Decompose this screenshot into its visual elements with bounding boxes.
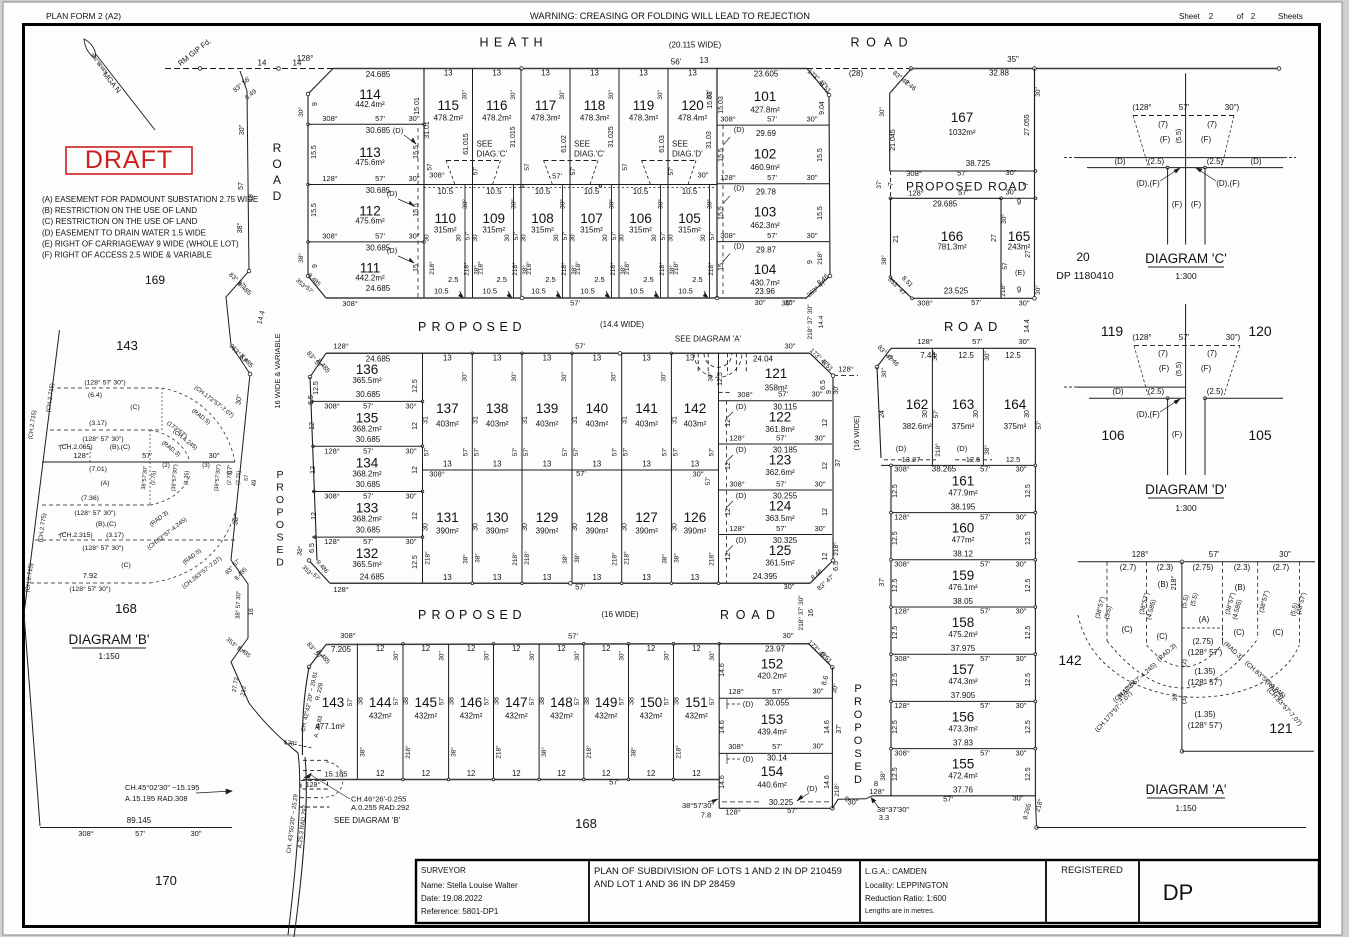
svg-text:13: 13 <box>688 69 697 78</box>
svg-text:20: 20 <box>1076 250 1090 264</box>
svg-text:SEE DIAGRAM 'A': SEE DIAGRAM 'A' <box>675 335 742 344</box>
svg-text:R: R <box>276 482 284 494</box>
svg-text:57': 57' <box>660 232 667 240</box>
svg-text:308°: 308° <box>894 654 910 663</box>
svg-text:163: 163 <box>952 397 975 412</box>
svg-text:122: 122 <box>769 409 792 424</box>
svg-text:151: 151 <box>685 695 708 710</box>
svg-text:(D): (D) <box>1250 157 1261 166</box>
svg-text:27: 27 <box>1025 250 1032 258</box>
svg-text:30": 30" <box>784 342 795 351</box>
svg-text:2: 2 <box>1251 12 1256 21</box>
svg-text:(F): (F) <box>1159 364 1170 373</box>
svg-text:119: 119 <box>633 98 655 113</box>
svg-text:38°: 38° <box>672 553 680 563</box>
svg-text:57': 57' <box>576 469 586 478</box>
svg-text:30.14: 30.14 <box>767 754 788 763</box>
svg-text:30: 30 <box>671 523 678 531</box>
svg-text:(D): (D) <box>957 444 968 453</box>
svg-text:781.3m²: 781.3m² <box>937 243 967 252</box>
svg-text:1:150: 1:150 <box>1175 803 1197 813</box>
svg-text:(2.5): (2.5) <box>1148 387 1165 396</box>
svg-text:57': 57' <box>363 401 373 410</box>
svg-text:30°: 30° <box>657 199 665 209</box>
svg-text:12.5: 12.5 <box>1025 767 1032 781</box>
svg-text:A: A <box>884 36 893 50</box>
svg-text:S: S <box>487 320 495 334</box>
svg-text:13: 13 <box>541 69 550 78</box>
svg-text:128°: 128° <box>838 365 854 374</box>
svg-text:38: 38 <box>539 697 546 705</box>
svg-text:9: 9 <box>826 390 833 394</box>
svg-text:30": 30" <box>405 446 416 455</box>
svg-text:12: 12 <box>822 553 829 561</box>
svg-text:365.5m²: 365.5m² <box>352 376 382 385</box>
svg-text:10.5: 10.5 <box>437 187 453 196</box>
svg-text:3.3: 3.3 <box>879 813 889 822</box>
svg-text:15.03: 15.03 <box>718 96 725 114</box>
svg-text:218°: 218° <box>560 262 568 276</box>
svg-text:128°: 128° <box>297 54 314 63</box>
svg-text:427.8m²: 427.8m² <box>750 105 780 114</box>
svg-text:57': 57' <box>980 512 990 521</box>
svg-text:218°: 218° <box>404 745 412 759</box>
svg-text:38°57'30": 38°57'30" <box>682 801 714 810</box>
svg-text:420.2m²: 420.2m² <box>757 672 787 681</box>
svg-text:DIAGRAM 'B': DIAGRAM 'B' <box>69 632 150 647</box>
svg-text:30": 30" <box>783 582 794 591</box>
svg-text:38°: 38° <box>540 747 548 757</box>
svg-text:160: 160 <box>952 521 975 536</box>
svg-text:143: 143 <box>116 338 138 353</box>
svg-text:35": 35" <box>1007 55 1019 64</box>
svg-text:12: 12 <box>725 462 732 470</box>
svg-text:12: 12 <box>467 769 476 778</box>
svg-text:57': 57' <box>1209 550 1220 559</box>
svg-text:PLAN FORM 2 (A2): PLAN FORM 2 (A2) <box>46 11 121 21</box>
svg-text:(28): (28) <box>849 69 864 78</box>
svg-text:315m²: 315m² <box>531 226 554 235</box>
svg-text:30": 30" <box>510 90 517 100</box>
svg-text:30': 30' <box>1172 693 1179 701</box>
svg-text:218° 37' 30": 218° 37' 30" <box>797 595 805 631</box>
svg-text:12.5: 12.5 <box>1025 578 1032 592</box>
svg-text:P: P <box>854 683 861 695</box>
svg-text:49: 49 <box>248 194 255 202</box>
svg-text:30: 30 <box>668 234 675 242</box>
svg-text:105: 105 <box>1248 427 1272 443</box>
svg-text:57': 57' <box>570 167 577 175</box>
svg-text:38°: 38° <box>561 554 569 564</box>
svg-text:38: 38 <box>584 697 591 705</box>
svg-text:(1.35): (1.35) <box>1195 710 1216 719</box>
svg-text:PLAN OF SUBDIVISION OF LOTS 1: PLAN OF SUBDIVISION OF LOTS 1 AND 2 IN D… <box>594 866 842 877</box>
svg-text:2.5: 2.5 <box>448 275 458 284</box>
svg-text:38°: 38° <box>983 445 991 455</box>
svg-text:R: R <box>273 141 282 155</box>
svg-text:57: 57 <box>1002 262 1009 270</box>
svg-text:57': 57' <box>611 232 618 240</box>
svg-text:12: 12 <box>725 508 732 516</box>
svg-text:30°: 30° <box>608 199 616 209</box>
svg-text:403m²: 403m² <box>586 420 609 429</box>
svg-text:478.2m²: 478.2m² <box>482 114 512 123</box>
svg-text:2.5: 2.5 <box>692 275 702 284</box>
svg-text:9: 9 <box>312 264 319 268</box>
svg-text:12.5: 12.5 <box>892 578 899 592</box>
svg-text:30": 30" <box>1015 748 1026 757</box>
svg-text:38: 38 <box>494 697 501 705</box>
svg-text:126: 126 <box>684 510 707 525</box>
svg-text:57': 57' <box>623 448 630 456</box>
svg-text:118: 118 <box>584 98 606 113</box>
svg-text:38: 38 <box>674 697 681 705</box>
svg-text:9: 9 <box>1017 286 1022 295</box>
svg-text:30.685: 30.685 <box>356 435 381 444</box>
svg-text:30": 30" <box>529 651 536 661</box>
svg-text:2.5: 2.5 <box>545 275 555 284</box>
svg-text:474.3m²: 474.3m² <box>948 677 978 686</box>
svg-text:368.2m²: 368.2m² <box>352 424 382 433</box>
svg-text:147: 147 <box>505 695 528 710</box>
svg-text:57: 57 <box>622 163 629 171</box>
svg-text:30: 30 <box>1024 410 1031 418</box>
svg-text:38°: 38° <box>450 747 458 757</box>
svg-text:(6.4): (6.4) <box>88 392 102 399</box>
svg-text:478.4m²: 478.4m² <box>678 114 708 123</box>
svg-text:477.9m²: 477.9m² <box>948 488 978 497</box>
svg-text:57': 57' <box>473 167 480 175</box>
svg-text:(2.5): (2.5) <box>1207 157 1224 166</box>
svg-text:128°: 128° <box>729 434 745 443</box>
svg-text:440.6m²: 440.6m² <box>757 781 787 790</box>
svg-text:30.055: 30.055 <box>765 699 790 708</box>
svg-text:38°: 38° <box>297 253 305 263</box>
svg-text:478.3m²: 478.3m² <box>531 114 561 123</box>
svg-text:142: 142 <box>1058 652 1082 668</box>
svg-text:(5.5): (5.5) <box>1176 362 1183 376</box>
svg-text:218°: 218° <box>585 745 593 759</box>
svg-text:13: 13 <box>639 69 648 78</box>
svg-text:128°: 128° <box>908 189 924 198</box>
svg-text:21: 21 <box>893 235 900 243</box>
svg-text:57': 57' <box>552 172 562 181</box>
svg-text:30": 30" <box>692 470 703 479</box>
svg-text:308°: 308° <box>728 742 744 751</box>
svg-text:12: 12 <box>512 644 521 653</box>
svg-text:30: 30 <box>472 234 479 242</box>
svg-text:130: 130 <box>486 510 509 525</box>
svg-text:128°: 128° <box>333 342 349 351</box>
svg-text:13: 13 <box>493 354 502 363</box>
svg-text:140: 140 <box>586 401 609 416</box>
svg-text:308°: 308° <box>342 299 358 308</box>
svg-text:30: 30 <box>456 234 463 242</box>
svg-text:146: 146 <box>460 695 483 710</box>
svg-text:12: 12 <box>822 508 829 516</box>
svg-text:(128° 57' 30"): (128° 57' 30") <box>84 379 125 387</box>
svg-text:(2.3): (2.3) <box>1157 563 1174 572</box>
svg-text:(2.5): (2.5) <box>1207 387 1224 396</box>
svg-text:(D): (D) <box>387 246 398 255</box>
svg-text:(7): (7) <box>1158 120 1168 129</box>
svg-text:30": 30" <box>709 651 716 661</box>
svg-text:30": 30" <box>511 372 518 382</box>
svg-text:Name: Stella Louise Walter: Name: Stella Louise Walter <box>421 881 518 890</box>
svg-text:24: 24 <box>879 410 886 418</box>
svg-text:13: 13 <box>686 354 695 363</box>
svg-text:30": 30" <box>619 651 626 661</box>
svg-text:O: O <box>854 709 863 721</box>
svg-text:38°: 38° <box>461 554 469 564</box>
svg-text:31.01: 31.01 <box>424 121 431 139</box>
svg-text:308°: 308° <box>729 480 745 489</box>
svg-text:123: 123 <box>769 453 792 468</box>
svg-text:13: 13 <box>700 56 709 65</box>
svg-text:(D): (D) <box>1112 387 1123 396</box>
svg-text:10.5: 10.5 <box>584 187 600 196</box>
svg-text:57': 57' <box>709 232 716 240</box>
svg-text:308°: 308° <box>737 390 753 399</box>
svg-text:154: 154 <box>761 764 784 779</box>
svg-text:167: 167 <box>951 110 974 125</box>
svg-text:13: 13 <box>593 573 602 582</box>
svg-text:12: 12 <box>376 769 385 778</box>
svg-text:101: 101 <box>754 89 777 104</box>
svg-text:DP: DP <box>1163 880 1194 905</box>
svg-text:150: 150 <box>640 695 663 710</box>
svg-text:403m²: 403m² <box>486 420 509 429</box>
svg-text:128°: 128° <box>894 701 910 710</box>
svg-text:13: 13 <box>590 69 599 78</box>
svg-text:(D): (D) <box>736 491 747 500</box>
svg-text:E: E <box>500 608 508 622</box>
svg-text:12.5: 12.5 <box>892 720 899 734</box>
svg-text:(128° 57'): (128° 57') <box>1188 721 1223 730</box>
svg-text:REGISTERED: REGISTERED <box>1061 865 1123 876</box>
svg-text:30": 30" <box>1035 87 1042 97</box>
svg-text:38.12: 38.12 <box>953 550 974 559</box>
svg-text:37.76: 37.76 <box>953 786 974 795</box>
svg-text:13: 13 <box>543 460 552 469</box>
svg-text:D: D <box>766 608 775 622</box>
svg-text:12.5: 12.5 <box>1025 484 1032 498</box>
svg-text:29.87: 29.87 <box>756 246 777 255</box>
svg-text:363.5m²: 363.5m² <box>765 514 795 523</box>
svg-text:315m²: 315m² <box>434 226 457 235</box>
svg-text:107: 107 <box>580 211 603 226</box>
svg-text:61.015: 61.015 <box>463 133 470 155</box>
svg-text:57': 57' <box>135 829 145 838</box>
svg-text:30": 30" <box>1015 465 1026 474</box>
svg-text:30": 30" <box>611 372 618 382</box>
svg-text:38.195: 38.195 <box>951 502 976 511</box>
svg-text:16: 16 <box>808 609 815 617</box>
svg-text:12.5: 12.5 <box>892 484 899 498</box>
svg-text:117: 117 <box>535 98 557 113</box>
svg-text:AND LOT 1 AND 36 IN DP 28459: AND LOT 1 AND 36 IN DP 28459 <box>594 879 735 890</box>
svg-text:57': 57' <box>375 231 385 240</box>
svg-text:DP 1180410: DP 1180410 <box>1056 270 1114 282</box>
svg-text:30": 30" <box>812 742 823 751</box>
svg-text:15.5: 15.5 <box>311 203 318 217</box>
svg-text:218°: 218° <box>495 745 503 759</box>
svg-text:31: 31 <box>423 416 430 424</box>
svg-text:15.03: 15.03 <box>707 91 714 109</box>
svg-text:57': 57' <box>980 748 990 757</box>
svg-text:13: 13 <box>543 354 552 363</box>
svg-text:57': 57' <box>142 451 152 460</box>
svg-text:57': 57' <box>957 169 967 178</box>
svg-text:(2.75): (2.75) <box>150 470 157 485</box>
svg-text:(D) EASEMENT TO DRAIN WATER 1.: (D) EASEMENT TO DRAIN WATER 1.5 WIDE <box>42 228 206 237</box>
svg-text:30: 30 <box>570 234 577 242</box>
svg-text:57': 57' <box>980 654 990 663</box>
svg-text:D: D <box>898 36 907 50</box>
svg-text:12: 12 <box>412 466 419 474</box>
svg-text:432m²: 432m² <box>414 712 437 721</box>
svg-text:375m²: 375m² <box>1004 422 1027 431</box>
svg-text:(1.35): (1.35) <box>1195 667 1216 676</box>
svg-text:128°: 128° <box>894 607 910 616</box>
svg-text:O: O <box>473 608 483 622</box>
svg-text:Date: 19.08.2022: Date: 19.08.2022 <box>421 894 483 903</box>
svg-text:403m²: 403m² <box>536 420 559 429</box>
svg-text:368.2m²: 368.2m² <box>352 515 382 524</box>
svg-text:38: 38 <box>629 697 636 705</box>
svg-text:38°: 38° <box>236 223 244 234</box>
svg-text:57': 57' <box>767 173 777 182</box>
svg-text:O: O <box>736 608 746 622</box>
svg-text:37': 37' <box>879 577 886 586</box>
svg-text:308°: 308° <box>429 470 445 479</box>
svg-text:14.6: 14.6 <box>719 775 726 789</box>
svg-text:375m²: 375m² <box>952 422 975 431</box>
svg-text:57: 57 <box>427 163 434 171</box>
svg-text:12: 12 <box>822 419 829 427</box>
svg-text:31: 31 <box>472 416 479 424</box>
svg-text:132: 132 <box>356 546 379 561</box>
svg-text:30": 30" <box>461 372 468 382</box>
svg-text:SEE: SEE <box>477 140 493 149</box>
svg-text:57': 57' <box>512 448 519 456</box>
svg-text:30.685: 30.685 <box>356 390 381 399</box>
svg-text:57': 57' <box>529 697 536 705</box>
svg-text:(2.75): (2.75) <box>226 470 233 485</box>
svg-text:30°: 30° <box>706 199 714 209</box>
svg-text:30": 30" <box>812 686 823 695</box>
svg-text:30": 30" <box>462 90 469 100</box>
svg-text:31.015: 31.015 <box>510 126 517 148</box>
svg-text:57': 57' <box>570 299 580 308</box>
svg-text:12: 12 <box>512 769 521 778</box>
svg-text:15: 15 <box>413 264 420 272</box>
svg-text:218°: 218° <box>623 551 631 565</box>
svg-text:12.5: 12.5 <box>892 767 899 781</box>
svg-text:(128° 57' 30"): (128° 57' 30") <box>74 509 115 517</box>
svg-text:10.5: 10.5 <box>535 187 551 196</box>
svg-text:14.6: 14.6 <box>719 720 726 734</box>
svg-text:120: 120 <box>1248 323 1272 339</box>
svg-text:57': 57' <box>933 410 940 418</box>
svg-text:(D): (D) <box>734 125 745 134</box>
svg-text:128°: 128° <box>324 537 340 546</box>
svg-text:A: A <box>508 36 517 50</box>
svg-text:6.5: 6.5 <box>820 380 827 390</box>
svg-text:12: 12 <box>311 512 318 520</box>
svg-text:128°: 128° <box>728 687 744 696</box>
svg-text:121: 121 <box>765 366 788 381</box>
svg-text:30": 30" <box>574 651 581 661</box>
svg-text:127: 127 <box>635 510 658 525</box>
svg-text:478.2m²: 478.2m² <box>434 114 464 123</box>
svg-text:38°: 38° <box>880 255 888 265</box>
svg-text:37': 37' <box>876 180 883 188</box>
svg-text:15.5: 15.5 <box>413 203 420 217</box>
svg-text:57': 57' <box>573 448 580 456</box>
svg-text:31: 31 <box>572 416 579 424</box>
svg-text:30": 30" <box>814 434 825 443</box>
svg-text:12.5: 12.5 <box>1025 626 1032 640</box>
svg-text:L.G.A.: CAMDEN: L.G.A.: CAMDEN <box>865 867 927 876</box>
svg-text:57': 57' <box>776 434 786 443</box>
svg-text:7.205: 7.205 <box>331 645 352 654</box>
svg-text:432m²: 432m² <box>685 712 708 721</box>
svg-text:102: 102 <box>754 146 777 161</box>
svg-text:308°: 308° <box>322 231 338 240</box>
svg-text:27.055: 27.055 <box>1024 114 1031 136</box>
svg-text:38.05: 38.05 <box>953 597 974 606</box>
svg-text:E: E <box>500 320 508 334</box>
svg-text:27: 27 <box>991 234 998 242</box>
svg-text:30: 30 <box>700 234 707 242</box>
svg-text:(D),(F): (D),(F) <box>1216 179 1240 188</box>
svg-text:Reduction Ratio: 1:600: Reduction Ratio: 1:600 <box>865 894 947 903</box>
svg-text:A.15.195 RAD.308: A.15.195 RAD.308 <box>125 794 188 803</box>
svg-text:12: 12 <box>421 644 430 653</box>
svg-text:30": 30" <box>608 90 615 100</box>
svg-text:E: E <box>276 544 283 556</box>
svg-text:57': 57' <box>609 777 619 786</box>
svg-text:(B),(C): (B),(C) <box>110 444 130 451</box>
svg-text:142: 142 <box>684 401 707 416</box>
svg-text:P: P <box>418 320 426 334</box>
svg-text:57': 57' <box>971 298 981 307</box>
svg-text:478.3m²: 478.3m² <box>580 114 610 123</box>
svg-text:D: D <box>513 320 522 334</box>
svg-text:30: 30 <box>651 234 658 242</box>
svg-text:57': 57' <box>943 795 953 804</box>
svg-text:57': 57' <box>347 698 354 706</box>
svg-text:(7): (7) <box>1207 120 1217 129</box>
svg-text:30": 30" <box>1015 607 1026 616</box>
svg-text:57': 57' <box>778 390 788 399</box>
svg-text:218°: 218° <box>672 261 680 275</box>
svg-text:308°: 308° <box>917 299 933 308</box>
svg-text:O: O <box>445 320 455 334</box>
svg-text:(2.75): (2.75) <box>1193 637 1214 646</box>
svg-text:32.88: 32.88 <box>989 69 1010 78</box>
svg-text:57': 57' <box>664 697 671 705</box>
svg-text:57': 57' <box>465 232 472 240</box>
svg-text:(C): (C) <box>1272 628 1283 637</box>
svg-text:308°: 308° <box>429 171 445 180</box>
svg-text:38: 38 <box>357 697 364 705</box>
svg-text:(B) RESTRICTION ON THE USE OF: (B) RESTRICTION ON THE USE OF LAND <box>42 206 197 215</box>
svg-text:P: P <box>459 320 467 334</box>
svg-text:(F): (F) <box>1191 200 1202 209</box>
svg-text:30.685: 30.685 <box>356 526 381 535</box>
